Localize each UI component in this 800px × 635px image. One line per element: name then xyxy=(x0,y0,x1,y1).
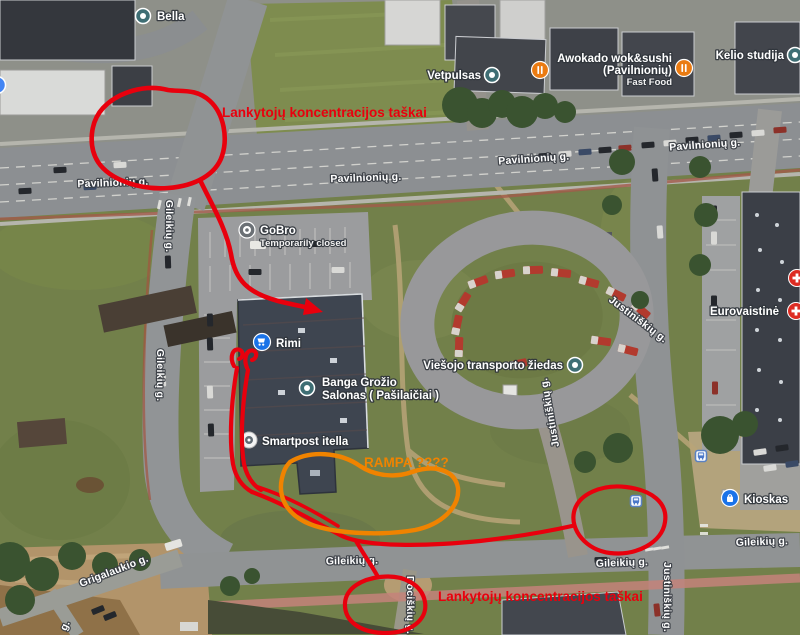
generic-poi-icon xyxy=(568,358,583,373)
generic-poi-icon xyxy=(136,9,151,24)
poi-label: Banga Grožio xyxy=(322,377,397,389)
poi-marker-viesojo[interactable]: Viešojo transporto žiedas xyxy=(423,358,582,373)
street-label-gileikiu-b3: Gileikių g. xyxy=(736,535,789,549)
poi-marker-vetpulsas[interactable]: Vetpulsas xyxy=(427,68,499,83)
street-label-justiniskiu-bottom: Justiniškių g. xyxy=(661,562,673,632)
bus-stop-icon-2[interactable] xyxy=(631,496,642,507)
poi-label: Kioskas xyxy=(744,494,788,506)
street-label-gileikiu-b2: Gileikių g. xyxy=(596,556,649,570)
street-label-gileikiu-v2: Gileikių g. xyxy=(154,349,166,401)
poi-label: Rimi xyxy=(276,338,301,350)
shopping-cart-icon xyxy=(254,334,271,351)
satellite-map: Pavilnionių g. Pavilnionių g. Pavilnioni… xyxy=(0,0,800,635)
poi-label: Vetpulsas xyxy=(427,70,481,82)
place-pin-icon xyxy=(239,222,255,238)
poi-label: Smartpost itella xyxy=(262,436,349,448)
poi-status: Temporarily closed xyxy=(260,238,347,249)
poi-label: Salonas ( Pašilaičiai ) xyxy=(322,390,439,402)
poi-label: Awokado wok&sushi xyxy=(557,53,672,65)
street-label-gileikiu-v1: Gileikių g. xyxy=(163,200,175,252)
bus-stop-icon-1[interactable] xyxy=(696,451,707,462)
red-annotation-text-bottom: Lankytojų koncentracijos taškai xyxy=(438,589,643,604)
shopping-bag-icon xyxy=(722,490,739,507)
poi-label: GoBro xyxy=(260,225,296,237)
poi-label: Eurovaistinė xyxy=(710,306,779,318)
satellite-map-viewport[interactable]: Pavilnionių g. Pavilnionių g. Pavilnioni… xyxy=(0,0,800,635)
poi-marker-restaurant[interactable] xyxy=(532,62,549,79)
poi-label: Fast Food xyxy=(627,77,673,88)
poi-label: Kelio studija xyxy=(716,50,785,62)
poi-label: Viešojo transporto žiedas xyxy=(423,360,563,372)
poi-marker-bella[interactable]: Bella xyxy=(136,9,186,24)
poi-label: (Pavilnionių) xyxy=(603,65,672,77)
generic-poi-icon xyxy=(788,48,800,63)
street-label-pavilnioniu-2: Pavilnionių g. xyxy=(330,171,401,185)
generic-poi-icon xyxy=(485,68,500,83)
poi-label: Bella xyxy=(157,11,185,23)
orange-annotation-text: RAMPA ???? xyxy=(364,455,449,470)
restaurant-icon xyxy=(676,60,693,77)
pharmacy-cross-icon xyxy=(788,303,800,320)
restaurant-icon xyxy=(532,62,549,79)
red-annotation-text-top: Lankytojų koncentracijos taškai xyxy=(222,105,427,120)
generic-poi-icon xyxy=(300,381,315,396)
